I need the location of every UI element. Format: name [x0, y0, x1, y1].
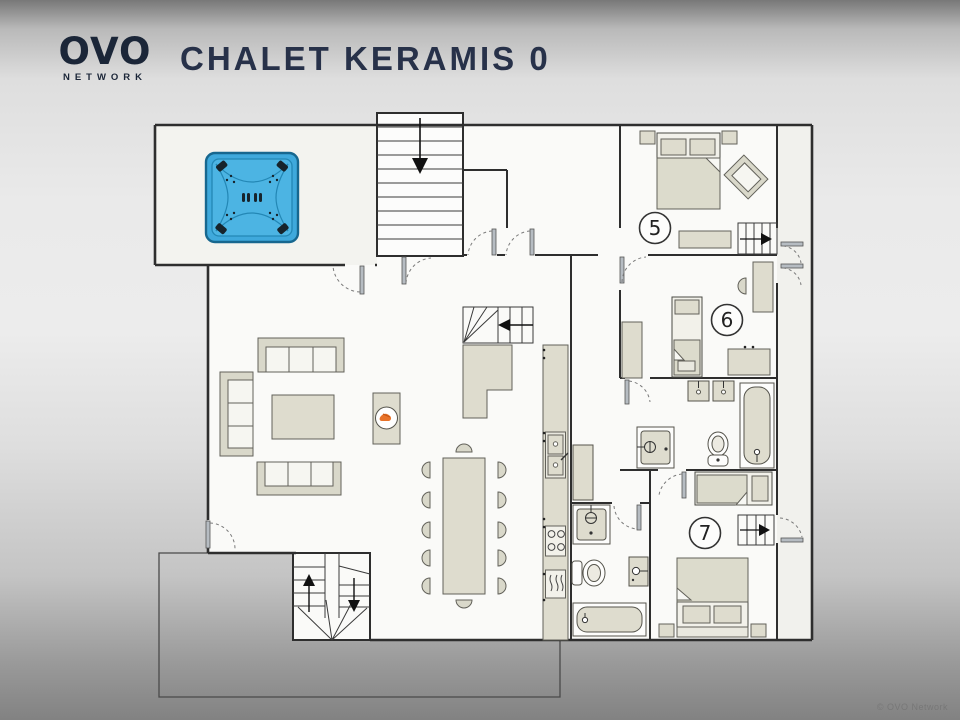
door-leaf [206, 521, 210, 548]
door-leaf [625, 380, 629, 404]
nightstand [659, 624, 674, 637]
bench [679, 231, 731, 248]
logo-subtext: NETWORK [50, 72, 160, 83]
logo-text: OVO [50, 34, 160, 70]
nightstand [751, 624, 766, 637]
svg-text:7: 7 [699, 521, 712, 545]
nightstand [640, 131, 655, 144]
low-cabinet [728, 349, 770, 375]
toilet-2 [572, 560, 605, 586]
door-leaf [682, 472, 686, 498]
single-bed [672, 297, 702, 377]
door-leaf [402, 257, 406, 284]
wall-sink [629, 557, 648, 586]
page-title: CHALET KERAMIS 0 [180, 40, 551, 78]
room-label-6: 6 [712, 305, 743, 336]
svg-text:6: 6 [721, 308, 734, 332]
nightstand [722, 131, 737, 144]
dining-table [443, 458, 485, 594]
sofa-bottom [257, 462, 341, 495]
door-leaf [637, 505, 641, 530]
single-bed-7 [695, 472, 772, 505]
wardrobe [622, 322, 642, 378]
hall-closet [573, 445, 593, 500]
shower-2 [573, 505, 610, 544]
bathtub [740, 383, 774, 468]
coffee-table [272, 395, 334, 439]
door-leaf [781, 264, 803, 268]
hot-tub-icon [206, 153, 298, 242]
sofa-top [258, 338, 344, 372]
door-leaf [781, 242, 803, 246]
svg-text:5: 5 [649, 216, 662, 240]
bathtub-2 [573, 603, 646, 636]
desk [753, 262, 773, 312]
door-leaf [492, 229, 496, 255]
kitchen-sink [546, 432, 569, 478]
ovo-network-logo: OVO NETWORK [50, 34, 160, 83]
double-bed [657, 133, 720, 209]
door-leaf [530, 229, 534, 255]
room-label-5: 5 [640, 213, 671, 244]
header: OVO NETWORK CHALET KERAMIS 0 [0, 0, 960, 110]
door-leaf [781, 538, 803, 542]
room-label-7: 7 [690, 518, 721, 549]
kitchen-hob [546, 526, 566, 556]
kitchen-oven [546, 570, 566, 598]
copyright-watermark: © OVO Network [877, 702, 948, 712]
balcony-strip [777, 125, 812, 640]
double-bed-7 [677, 558, 748, 637]
shower [637, 427, 674, 468]
sofa-left [220, 372, 253, 456]
floorplan-page: OVO NETWORK CHALET KERAMIS 0 [0, 0, 960, 720]
fireplace [373, 393, 400, 444]
door-leaf [360, 266, 364, 294]
toilet [708, 432, 728, 466]
